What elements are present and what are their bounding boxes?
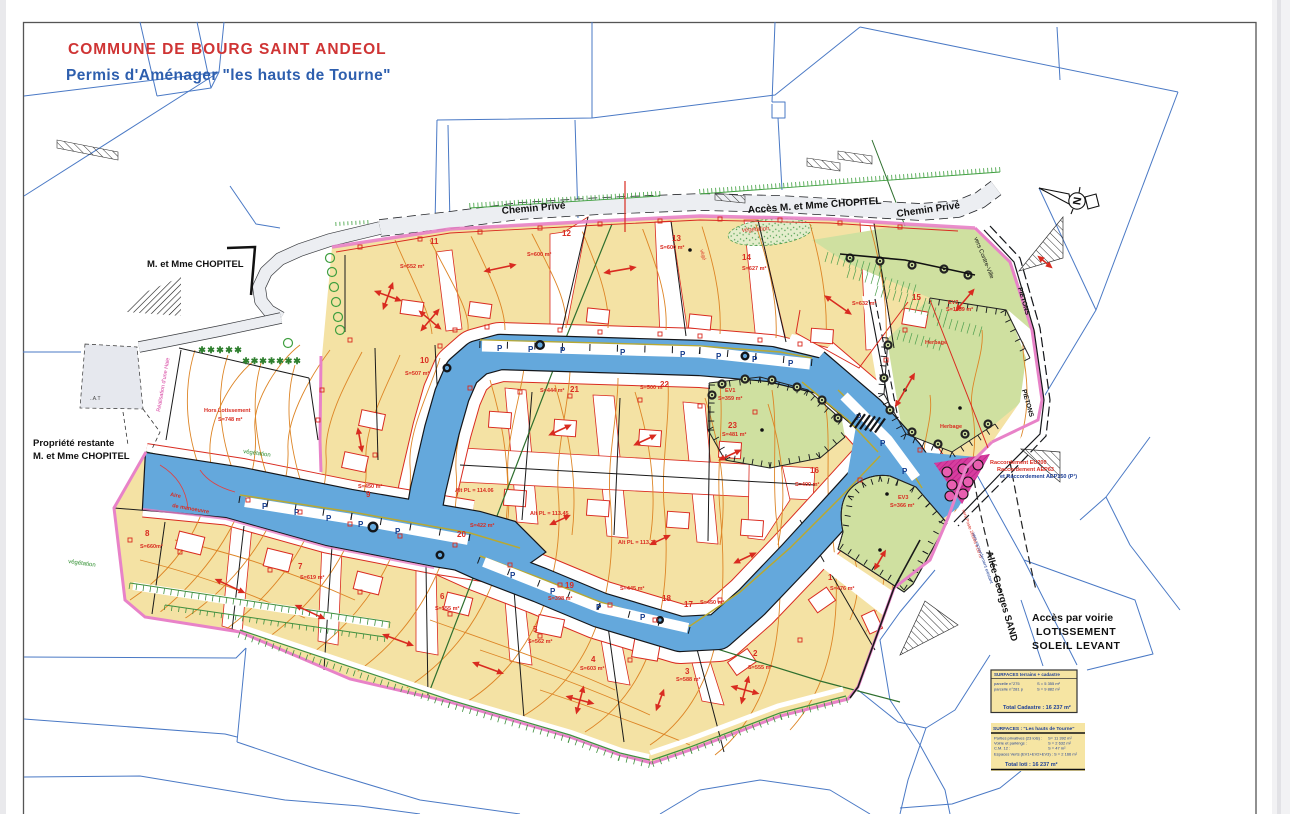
svg-text:✱: ✱ <box>234 345 242 355</box>
svg-text:S=366 m²: S=366 m² <box>890 502 914 509</box>
svg-text:S=359 m²: S=359 m² <box>718 395 742 402</box>
svg-text:Alt PL = 113.45: Alt PL = 113.45 <box>530 511 569 517</box>
svg-text:P: P <box>880 439 886 448</box>
svg-text:P: P <box>528 345 534 354</box>
svg-text:✱: ✱ <box>285 356 293 366</box>
svg-text:S=422 m²: S=422 m² <box>470 522 494 529</box>
svg-text:P: P <box>596 603 602 612</box>
svg-text:S=603 m²: S=603 m² <box>580 665 604 672</box>
svg-text:Propriété restante: Propriété restante <box>33 438 114 449</box>
svg-text:✱: ✱ <box>259 356 267 366</box>
svg-text:S=555 m²: S=555 m² <box>748 664 772 671</box>
svg-text:et Raccordement AEP150 (P¹): et Raccordement AEP150 (P¹) <box>1000 473 1077 480</box>
svg-text:P: P <box>550 587 556 596</box>
svg-text:S = 9 882 m²: S = 9 882 m² <box>1037 687 1061 692</box>
svg-text:11: 11 <box>430 237 439 246</box>
svg-text:S=588 m²: S=588 m² <box>676 676 700 683</box>
svg-text:13: 13 <box>672 234 681 243</box>
svg-text:1: 1 <box>828 573 833 582</box>
svg-text:P: P <box>716 352 722 361</box>
svg-text:P: P <box>902 467 908 476</box>
svg-text:16: 16 <box>810 466 819 475</box>
svg-text:C.M. 12 :: C.M. 12 : <box>994 746 1010 751</box>
svg-text:P: P <box>620 348 626 357</box>
svg-text:20: 20 <box>457 530 466 539</box>
svg-text:10: 10 <box>420 356 429 365</box>
svg-text:17: 17 <box>684 600 693 609</box>
svg-text:Permis d'Aménager "les hauts d: Permis d'Aménager "les hauts de Tourne" <box>66 67 391 84</box>
svg-text:✱: ✱ <box>242 356 250 366</box>
svg-text:✱: ✱ <box>216 345 224 355</box>
svg-text:8: 8 <box>145 529 150 538</box>
svg-text:S=507 m²: S=507 m² <box>405 370 429 377</box>
svg-text:S=660m²: S=660m² <box>140 543 163 550</box>
svg-text:6: 6 <box>440 592 445 601</box>
svg-text:P: P <box>497 344 503 353</box>
svg-text:S=748 m²: S=748 m² <box>218 416 242 423</box>
svg-text:Total Cadastre : 16 237 m²: Total Cadastre : 16 237 m² <box>1003 704 1071 711</box>
svg-text:S = 5 355 m²: S = 5 355 m² <box>1037 681 1061 686</box>
svg-text:P: P <box>752 355 758 364</box>
svg-text:..A.T: ..A.T <box>90 396 101 402</box>
svg-text:9: 9 <box>366 490 371 499</box>
svg-text:S=600 m²: S=600 m² <box>660 244 684 251</box>
svg-text:Alt PL = 114.06: Alt PL = 114.06 <box>455 488 494 494</box>
svg-text:14: 14 <box>742 253 751 262</box>
svg-text:✱: ✱ <box>268 356 276 366</box>
svg-text:M. et Mme CHOPITEL: M. et Mme CHOPITEL <box>33 451 130 462</box>
svg-text:Herbage: Herbage <box>925 340 947 346</box>
svg-text:S=632 m²: S=632 m² <box>852 300 876 307</box>
svg-text:23: 23 <box>728 421 737 430</box>
svg-text:S=600 m²: S=600 m² <box>527 251 551 258</box>
svg-text:SURFACES : "Les hauts de Tourn: SURFACES : "Les hauts de Tourne" <box>993 726 1075 732</box>
svg-text:12: 12 <box>562 229 571 238</box>
svg-text:P: P <box>358 520 364 529</box>
svg-text:S=445 m²: S=445 m² <box>620 585 644 592</box>
svg-text:21: 21 <box>570 385 579 394</box>
svg-text:Total loti : 16 237 m²: Total loti : 16 237 m² <box>1005 761 1058 768</box>
svg-text:S=555 m²: S=555 m² <box>435 605 459 612</box>
svg-text:SURFACES terrains + cadastre: SURFACES terrains + cadastre <box>994 672 1060 677</box>
svg-text:7: 7 <box>298 562 303 571</box>
svg-text:LOTISSEMENT: LOTISSEMENT <box>1036 626 1116 638</box>
svg-text:Alt PL = 113.25: Alt PL = 113.25 <box>618 540 657 546</box>
svg-text:S=444 m²: S=444 m² <box>540 387 564 394</box>
svg-text:S=450 m²: S=450 m² <box>358 483 382 490</box>
svg-text:Raccordement EU200: Raccordement EU200 <box>990 460 1047 466</box>
svg-text:✱: ✱ <box>198 345 206 355</box>
svg-text:P: P <box>560 346 566 355</box>
svg-text:Hors Lotissement: Hors Lotissement <box>204 408 251 414</box>
svg-text:S=481 m²: S=481 m² <box>722 431 746 438</box>
svg-text:18: 18 <box>662 594 671 603</box>
svg-text:P: P <box>680 350 686 359</box>
svg-text:S=476 m²: S=476 m² <box>830 585 854 592</box>
svg-text:P: P <box>510 571 516 580</box>
svg-text:parcelle n°275: parcelle n°275 <box>994 681 1020 686</box>
svg-text:5: 5 <box>533 625 538 634</box>
svg-text:P: P <box>788 359 794 368</box>
svg-text:Espaces Verts (EV1+EV2+EV3) :: Espaces Verts (EV1+EV2+EV3) : S = 2 166 … <box>994 752 1078 757</box>
svg-text:2: 2 <box>753 649 758 658</box>
svg-text:15: 15 <box>912 293 921 302</box>
svg-text:P: P <box>262 502 268 511</box>
svg-text:✱: ✱ <box>207 345 215 355</box>
svg-text:S=400 m²: S=400 m² <box>795 481 819 488</box>
svg-text:Accès par voirie: Accès par voirie <box>1032 612 1113 624</box>
svg-text:4: 4 <box>591 655 596 664</box>
svg-text:P: P <box>326 514 332 523</box>
svg-text:Raccordement AEP63: Raccordement AEP63 <box>997 467 1054 473</box>
svg-text:✱: ✱ <box>276 356 284 366</box>
svg-text:S=398 m²: S=398 m² <box>548 595 572 602</box>
svg-text:EV1: EV1 <box>725 388 735 394</box>
svg-text:parcelle n°281 p: parcelle n°281 p <box>994 687 1024 692</box>
svg-text:19: 19 <box>565 581 574 590</box>
svg-text:S = 47 m²: S = 47 m² <box>1048 746 1066 751</box>
svg-text:S=562 m²: S=562 m² <box>528 638 552 645</box>
svg-text:S=627 m²: S=627 m² <box>742 265 766 272</box>
svg-text:P: P <box>640 613 646 622</box>
svg-text:3: 3 <box>685 667 690 676</box>
svg-text:EV2: EV2 <box>948 300 958 306</box>
svg-text:EV3: EV3 <box>898 495 908 501</box>
svg-text:S=552 m²: S=552 m² <box>400 263 424 270</box>
svg-text:P: P <box>294 508 300 517</box>
svg-text:Herbage: Herbage <box>940 424 962 430</box>
svg-text:COMMUNE DE BOURG SAINT ANDEOL: COMMUNE DE BOURG SAINT ANDEOL <box>68 41 387 58</box>
svg-text:✱: ✱ <box>251 356 259 366</box>
svg-text:S=450 m²: S=450 m² <box>700 599 724 606</box>
svg-text:✱: ✱ <box>225 345 233 355</box>
svg-text:SOLEIL LEVANT: SOLEIL LEVANT <box>1032 640 1120 652</box>
svg-text:S=500 m²: S=500 m² <box>640 384 664 391</box>
svg-text:M. et Mme CHOPITEL: M. et Mme CHOPITEL <box>147 259 244 270</box>
svg-text:✱: ✱ <box>293 356 301 366</box>
svg-text:S=619 m²: S=619 m² <box>300 574 324 581</box>
